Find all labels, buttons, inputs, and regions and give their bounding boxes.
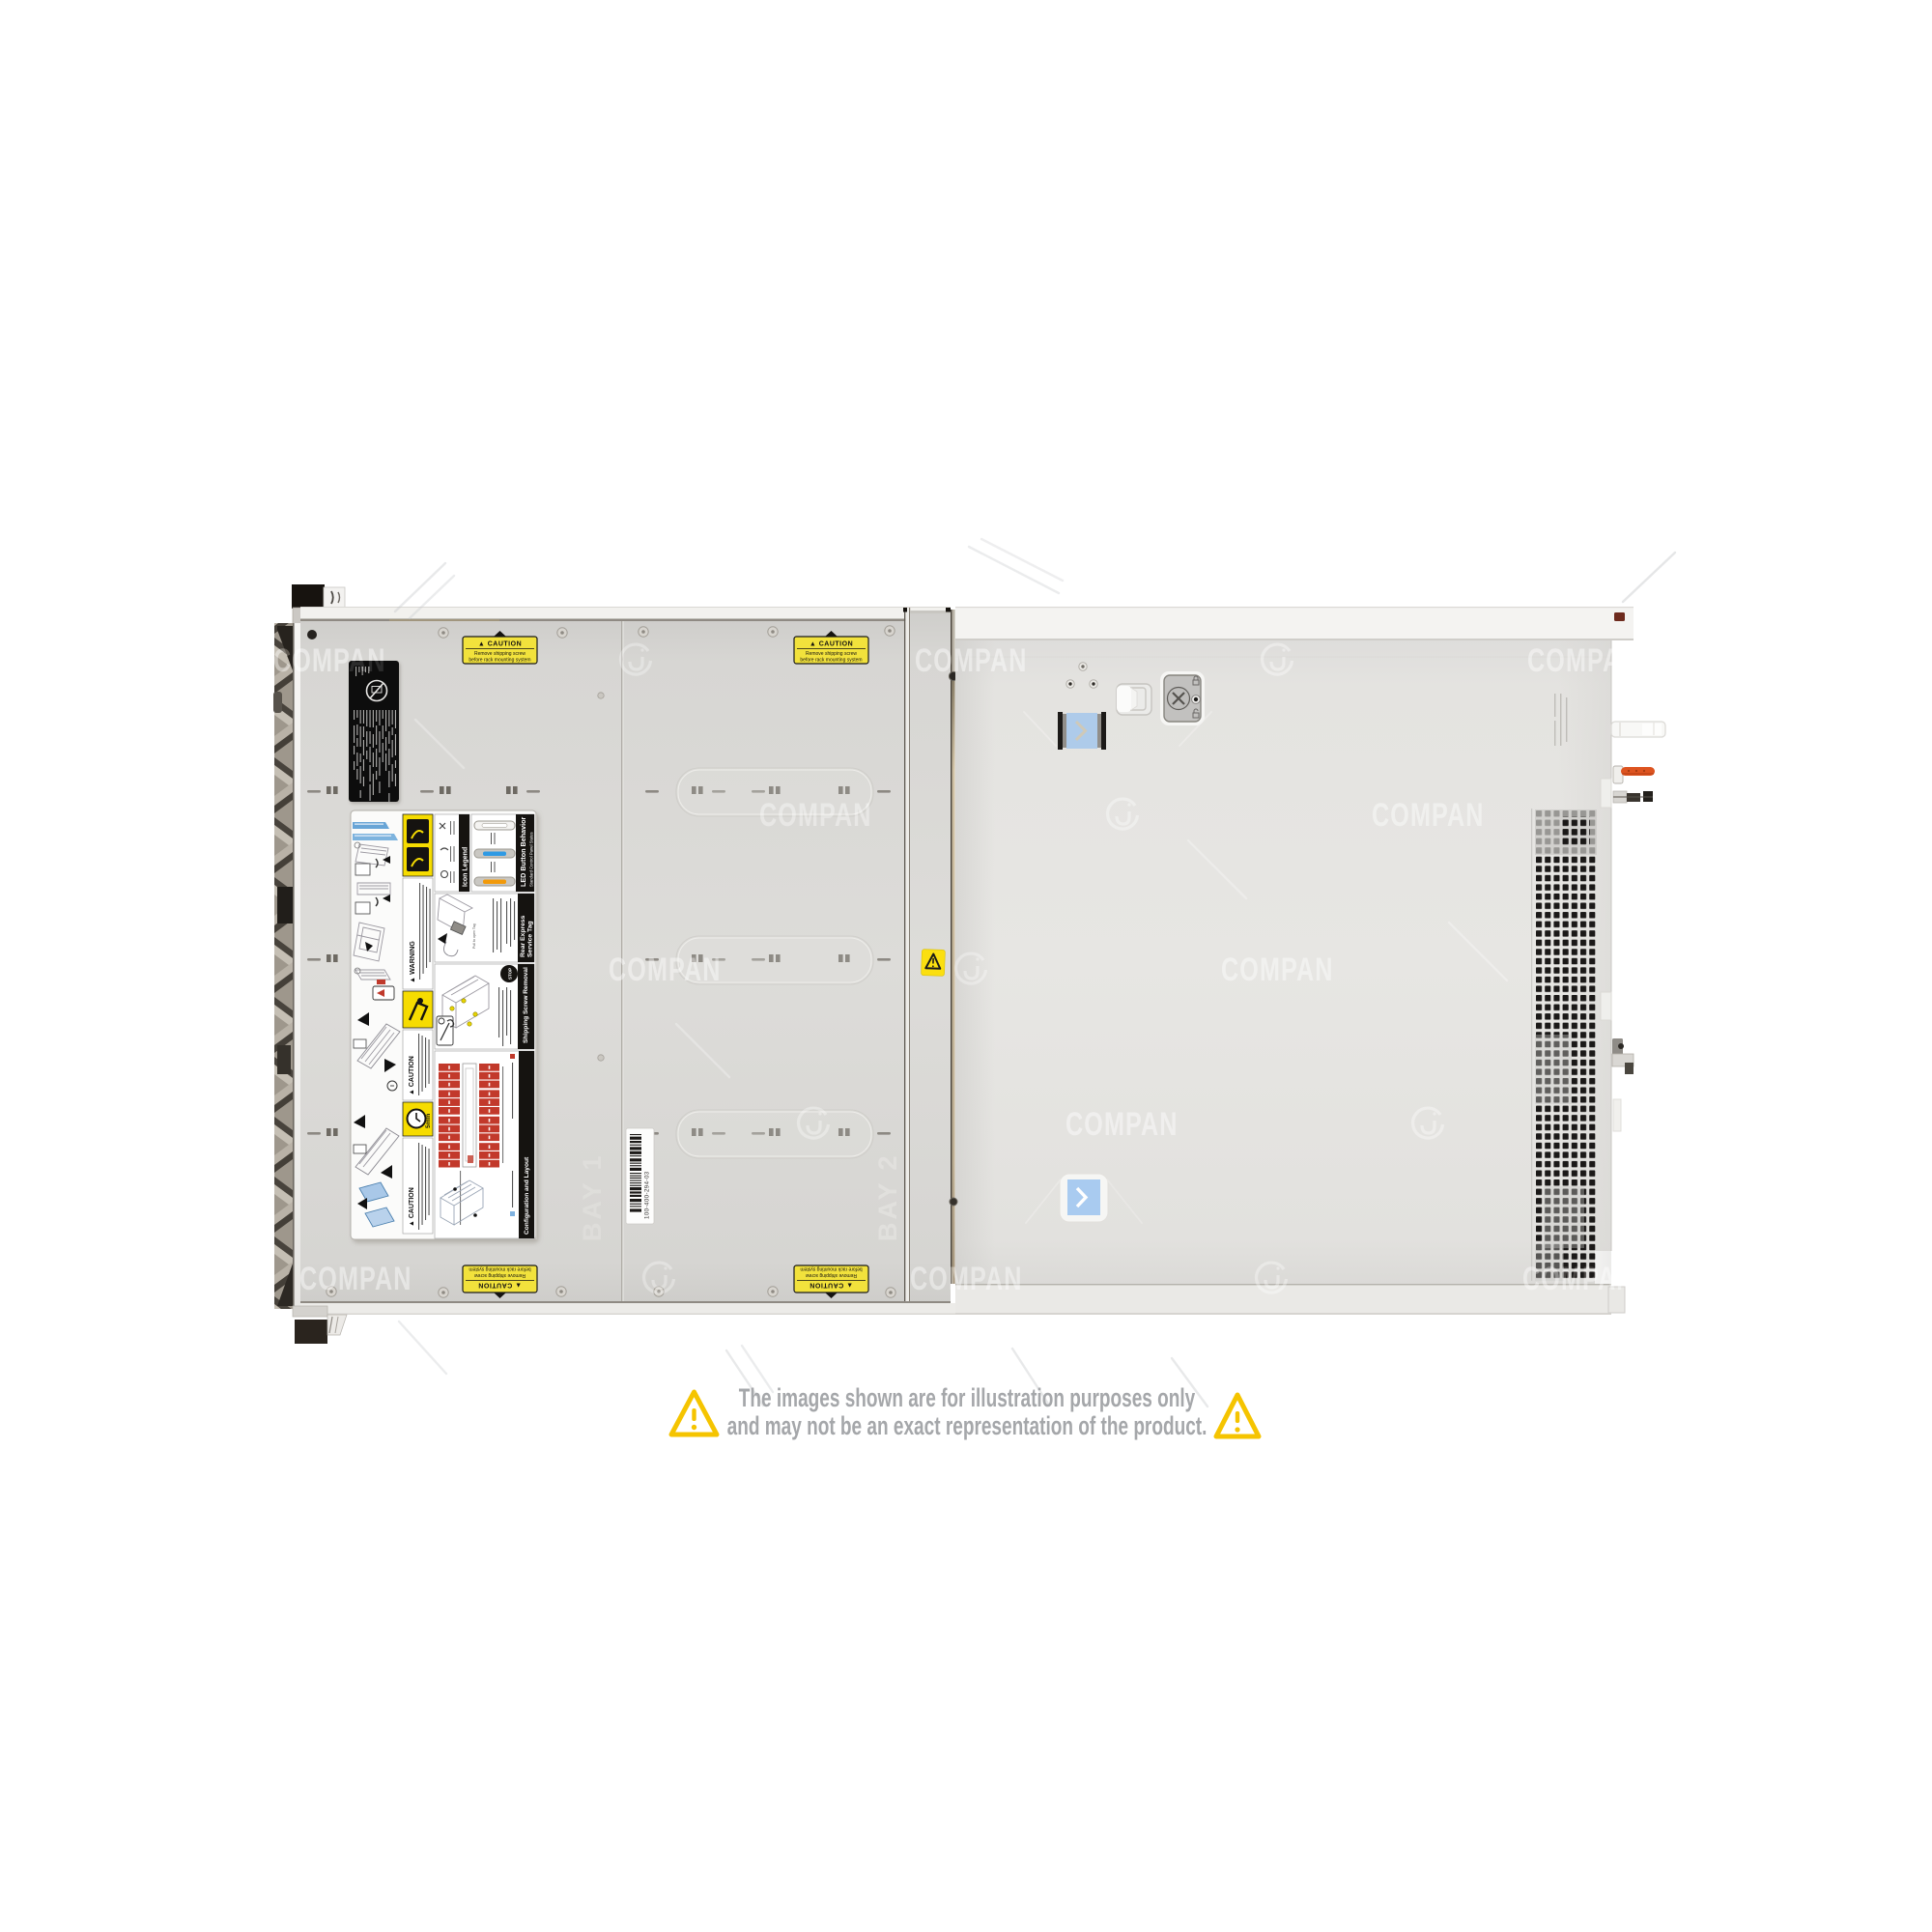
- svg-text:COMPAN: COMPAN: [1522, 1261, 1635, 1297]
- svg-text:before rack mounting system: before rack mounting system: [469, 658, 530, 664]
- svg-text:▲ CAUTION: ▲ CAUTION: [478, 641, 522, 648]
- svg-text:▲ CAUTION: ▲ CAUTION: [810, 641, 853, 648]
- svg-text:COMPAN: COMPAN: [609, 952, 722, 988]
- svg-text:Remove shipping screw: Remove shipping screw: [474, 651, 526, 657]
- svg-text:100-400-294-03: 100-400-294-03: [644, 1171, 651, 1219]
- svg-text:▲ CAUTION: ▲ CAUTION: [810, 1282, 853, 1289]
- svg-text:Standard Control Panel Status: Standard Control Panel Status: [529, 832, 534, 887]
- svg-text:▲ WARNING: ▲ WARNING: [408, 941, 416, 983]
- svg-text:Remove shipping screw: Remove shipping screw: [806, 651, 857, 657]
- svg-text:Service Tag: Service Tag: [527, 921, 534, 957]
- svg-text:before rack mounting system: before rack mounting system: [800, 1266, 862, 1272]
- svg-text:COMPAN: COMPAN: [273, 642, 386, 679]
- svg-text:▲ CAUTION: ▲ CAUTION: [409, 1187, 415, 1227]
- svg-text:before rack mounting system: before rack mounting system: [469, 1266, 530, 1272]
- svg-text:BAY 1: BAY 1: [578, 1152, 607, 1241]
- svg-text:The images shown are for illus: The images shown are for illustration pu…: [739, 1383, 1195, 1412]
- svg-text:LED Button Behavior: LED Button Behavior: [519, 817, 527, 887]
- svg-text:and may not be an exact repres: and may not be an exact representation o…: [727, 1411, 1207, 1440]
- svg-text:Rear Express: Rear Express: [520, 915, 526, 957]
- svg-text:COMPAN: COMPAN: [759, 797, 872, 834]
- svg-text:▲ CAUTION: ▲ CAUTION: [409, 1056, 415, 1095]
- svg-text:COMPAN: COMPAN: [1527, 642, 1640, 679]
- svg-text:COMPAN: COMPAN: [1221, 952, 1334, 988]
- svg-text:Icon Legend: Icon Legend: [463, 847, 469, 887]
- svg-text:before rack mounting system: before rack mounting system: [800, 658, 862, 664]
- svg-text:Configuration and Layout: Configuration and Layout: [524, 1156, 530, 1235]
- svg-text:BAY 2: BAY 2: [873, 1152, 902, 1241]
- svg-text:Remove shipping screw: Remove shipping screw: [474, 1272, 526, 1278]
- svg-text:COMPAN: COMPAN: [299, 1261, 412, 1297]
- svg-text:Pull to open Tag: Pull to open Tag: [472, 923, 476, 949]
- svg-text:5min: 5min: [425, 1114, 432, 1128]
- svg-text:Remove shipping screw: Remove shipping screw: [806, 1272, 857, 1278]
- svg-text:COMPAN: COMPAN: [1372, 797, 1485, 834]
- svg-text:COMPAN: COMPAN: [910, 1261, 1023, 1297]
- svg-text:Shipping Screw Removal: Shipping Screw Removal: [523, 967, 529, 1043]
- svg-text:STOP: STOP: [508, 968, 513, 980]
- svg-text:COMPAN: COMPAN: [1065, 1106, 1179, 1143]
- svg-text:▲ CAUTION: ▲ CAUTION: [478, 1282, 522, 1289]
- svg-text:COMPAN: COMPAN: [915, 642, 1028, 679]
